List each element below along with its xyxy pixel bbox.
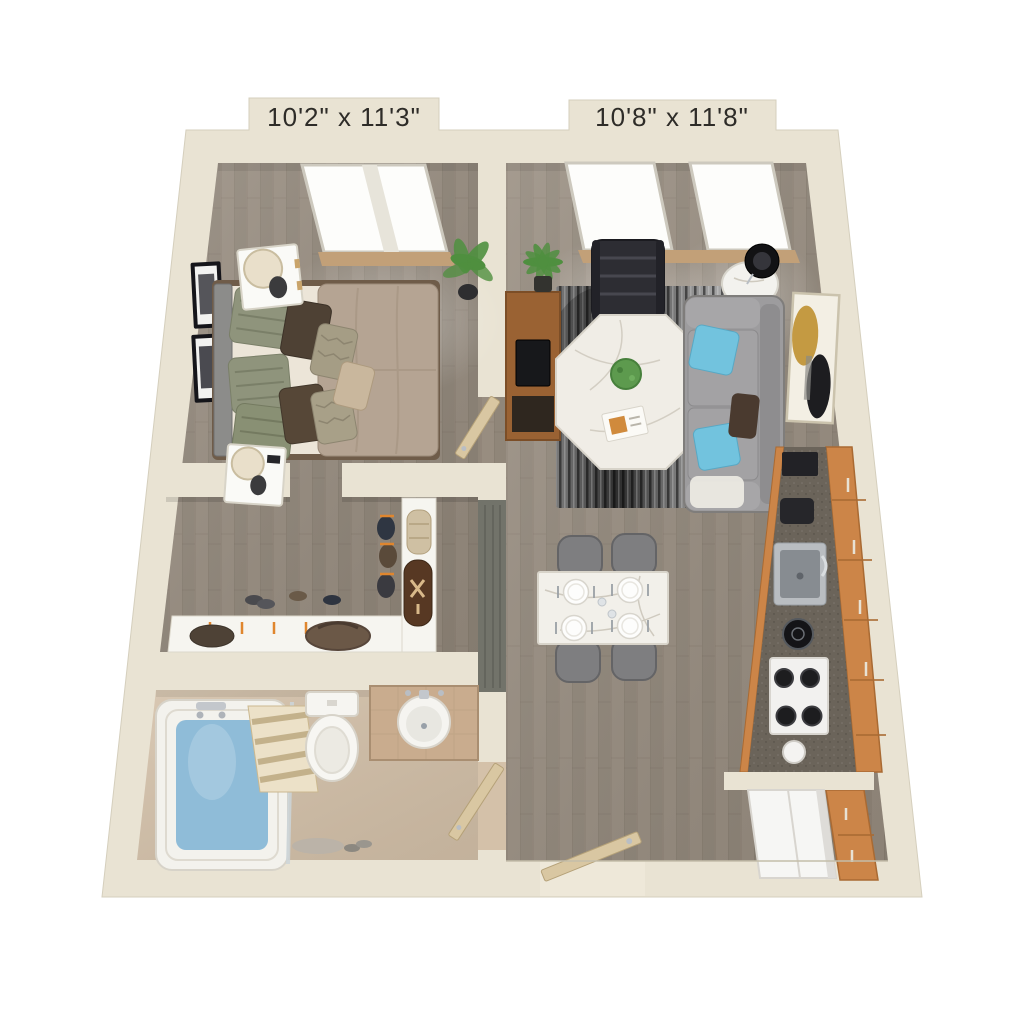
- sink-drain: [421, 723, 427, 729]
- coffee-maker: [783, 619, 813, 649]
- table-plant: [611, 359, 641, 389]
- remote: [267, 455, 281, 464]
- burner: [775, 669, 793, 687]
- sink-faucet: [419, 690, 429, 699]
- bath-mat: [292, 838, 344, 854]
- sink-drain: [797, 573, 804, 580]
- handbag: [190, 625, 234, 647]
- dining-chair: [612, 534, 656, 576]
- window-sill: [318, 252, 455, 266]
- dining-table: [538, 572, 668, 644]
- floor-lamp-inner: [753, 252, 771, 270]
- refrigerator: [748, 790, 836, 878]
- stove: [770, 658, 828, 734]
- faucet-handle: [438, 690, 444, 696]
- plant-pot: [458, 284, 478, 300]
- slippers: [356, 840, 372, 848]
- nightstand-1: [237, 244, 304, 310]
- toaster: [780, 498, 814, 524]
- tub-faucet: [196, 702, 226, 710]
- dining-chair: [556, 640, 600, 682]
- kitchen-wall-stub: [724, 772, 874, 790]
- nightstand-2: [224, 444, 286, 506]
- folded-clothes: [377, 574, 395, 598]
- shoes-pair: [323, 595, 341, 605]
- plant-pot: [534, 276, 552, 292]
- faucet-handle: [405, 690, 411, 696]
- living-skylight-window-1: [566, 163, 672, 250]
- floorplan-svg: 10'2" x 11'3" 10'8" x 11'8": [0, 0, 1024, 1024]
- burner: [801, 669, 819, 687]
- kettle: [783, 741, 805, 763]
- sofa-armrest-top: [686, 298, 760, 328]
- decor-shield: [404, 560, 432, 626]
- tub-handle: [219, 712, 226, 719]
- water-highlight: [188, 724, 236, 800]
- burner: [777, 707, 796, 726]
- wall-art-living: [787, 293, 840, 423]
- folded-clothes: [379, 544, 397, 568]
- shoes-pair: [289, 591, 307, 601]
- living-skylight-window-2: [690, 163, 790, 250]
- drawer-handle: [297, 281, 303, 290]
- kitchen-sink: [774, 543, 826, 605]
- duffel-bag: [306, 622, 370, 650]
- white-throw-blanket: [690, 476, 744, 508]
- decor-vase: [407, 510, 431, 554]
- chair-arm: [656, 240, 664, 320]
- living-room-dimension-label: 10'8" x 11'8": [595, 102, 749, 132]
- closet-wall-stub-mid: [342, 463, 478, 497]
- floorplan-image: 10'2" x 11'3" 10'8" x 11'8": [0, 0, 1024, 1024]
- glass: [608, 610, 616, 618]
- chair-arm: [592, 240, 600, 320]
- sofa: [684, 296, 784, 512]
- tv-console: [506, 292, 560, 440]
- glass: [598, 598, 606, 606]
- microwave: [782, 452, 818, 476]
- tub-handle: [197, 712, 204, 719]
- toilet-seat: [315, 727, 349, 773]
- folded-clothes: [377, 516, 395, 540]
- accent-chair: [592, 240, 664, 320]
- toilet-flush-button: [327, 700, 337, 706]
- shoes-pair: [257, 599, 275, 609]
- burner: [803, 707, 822, 726]
- console-shelf: [512, 396, 554, 432]
- bedroom-dimension-label: 10'2" x 11'3": [267, 102, 421, 132]
- drawer-handle: [294, 259, 300, 268]
- tv-screen: [516, 340, 550, 386]
- brown-throw-pillow: [728, 393, 760, 440]
